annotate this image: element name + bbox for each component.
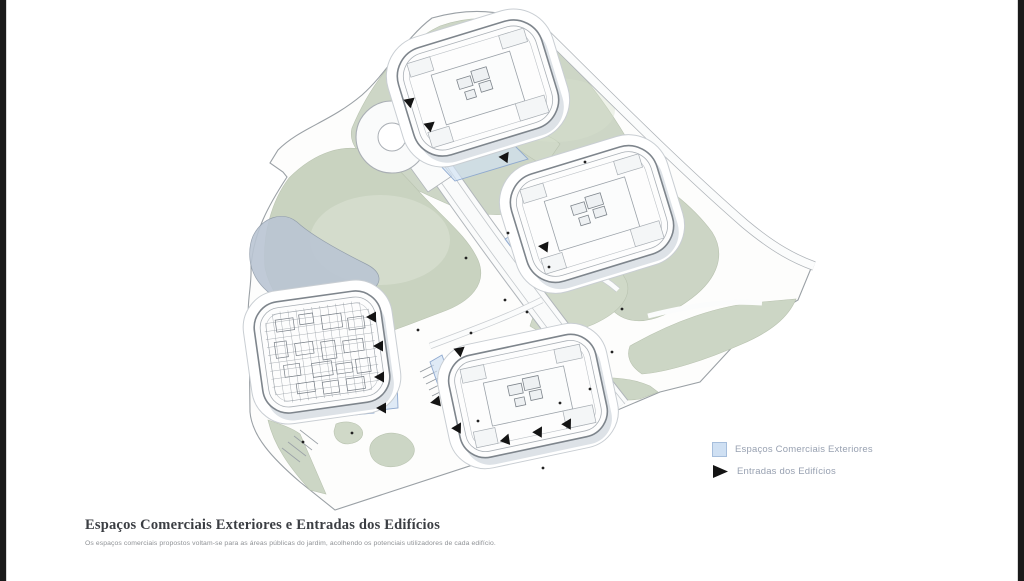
legend-label-entrances: Entradas dos Edifícios bbox=[737, 466, 836, 477]
person-dot bbox=[465, 257, 468, 260]
page-subtitle: Os espaços comerciais propostos voltam-s… bbox=[85, 540, 685, 547]
person-dot bbox=[507, 232, 510, 235]
site-plan-illustration bbox=[0, 0, 1024, 581]
entrance-triangle-icon bbox=[712, 464, 729, 479]
person-dot bbox=[526, 311, 529, 314]
person-dot bbox=[559, 402, 562, 405]
legend: Espaços Comerciais Exteriores Entradas d… bbox=[712, 442, 873, 479]
legend-item-commercial: Espaços Comerciais Exteriores bbox=[712, 442, 873, 457]
building-core bbox=[529, 389, 543, 400]
person-dot bbox=[504, 299, 507, 302]
person-dot bbox=[589, 388, 592, 391]
commercial-space-swatch-icon bbox=[712, 442, 727, 457]
person-dot bbox=[542, 467, 545, 470]
person-dot bbox=[584, 161, 587, 164]
person-dot bbox=[417, 329, 420, 332]
legend-label-commercial: Espaços Comerciais Exteriores bbox=[735, 444, 873, 455]
building-core bbox=[514, 397, 525, 407]
green-small-patch bbox=[334, 422, 363, 444]
page-title: Espaços Comerciais Exteriores e Entradas… bbox=[85, 517, 685, 534]
caption-block: Espaços Comerciais Exteriores e Entradas… bbox=[85, 517, 685, 547]
green-bottom-blob bbox=[370, 433, 415, 467]
person-dot bbox=[621, 308, 624, 311]
person-dot bbox=[477, 420, 480, 423]
legend-item-entrances: Entradas dos Edifícios bbox=[712, 464, 873, 479]
person-dot bbox=[351, 432, 354, 435]
person-dot bbox=[611, 351, 614, 354]
person-dot bbox=[302, 441, 305, 444]
person-dot bbox=[470, 332, 473, 335]
person-dot bbox=[548, 266, 551, 269]
presentation-page: Espaços Comerciais Exteriores Entradas d… bbox=[0, 0, 1024, 581]
